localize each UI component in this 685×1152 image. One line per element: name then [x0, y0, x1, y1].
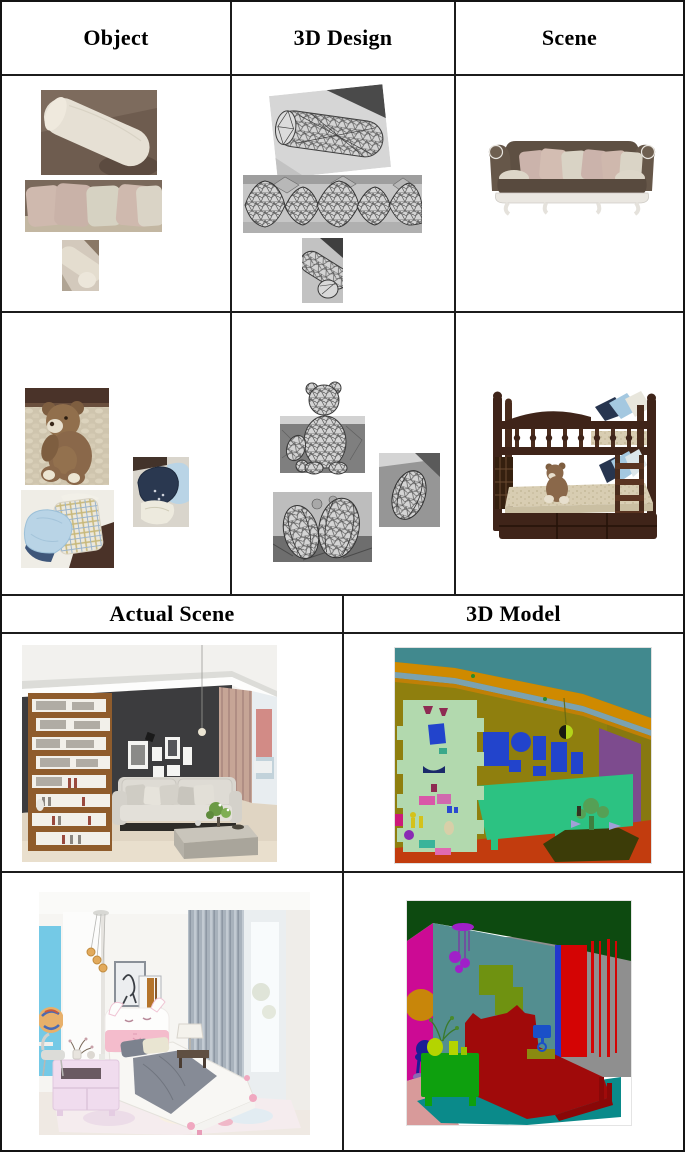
living-room-photo	[22, 645, 277, 862]
header-object-label: Object	[83, 25, 148, 51]
header-3d-model-label: 3D Model	[466, 601, 561, 627]
small-bolster-wireframe	[302, 238, 343, 303]
pillow-row-photo	[25, 180, 162, 232]
header-3d-model: 3D Model	[344, 596, 683, 632]
pillows-wireframe	[273, 492, 372, 562]
blue-pillows-photo	[21, 490, 114, 568]
navy-pillow-photo	[133, 457, 189, 527]
header-actual-scene-label: Actual Scene	[109, 601, 234, 627]
teddy-wireframe	[280, 380, 365, 475]
header-actual-scene: Actual Scene	[2, 596, 342, 632]
bedroom-photo	[39, 892, 310, 1135]
cell-r1-design	[232, 76, 454, 311]
bedroom-seg-model	[406, 900, 632, 1126]
header-object: Object	[2, 2, 230, 74]
cell-r1-object	[2, 76, 230, 311]
cell-r1-scene	[456, 76, 683, 311]
cell-r2-design	[232, 313, 454, 594]
pillow-wireframe-right	[379, 453, 440, 527]
cell-r2-object	[2, 313, 230, 594]
bunk-bed-render	[487, 387, 669, 545]
small-bolster-photo	[62, 240, 99, 291]
pillow-row-wireframe	[243, 175, 422, 233]
cell-r4-3d-model	[344, 873, 683, 1150]
cell-r3-actual-scene	[2, 634, 342, 871]
bolster-wireframe	[269, 84, 391, 178]
paper-figure-table: Object 3D Design Scene Actual Scene 3D M…	[0, 0, 685, 1152]
cell-r4-actual-scene	[2, 873, 342, 1150]
cell-r3-3d-model	[344, 634, 683, 871]
header-scene-label: Scene	[542, 25, 597, 51]
header-design-label: 3D Design	[294, 25, 393, 51]
sofa-render	[484, 133, 660, 217]
bookshelf	[28, 693, 112, 851]
bolster-pillow-photo	[41, 90, 157, 175]
header-design: 3D Design	[232, 2, 454, 74]
teddy-bear-photo	[25, 388, 109, 485]
cell-r2-scene	[456, 313, 683, 594]
seg-bookshelf	[397, 700, 484, 855]
living-room-seg-model	[394, 647, 652, 864]
header-scene: Scene	[456, 2, 683, 74]
